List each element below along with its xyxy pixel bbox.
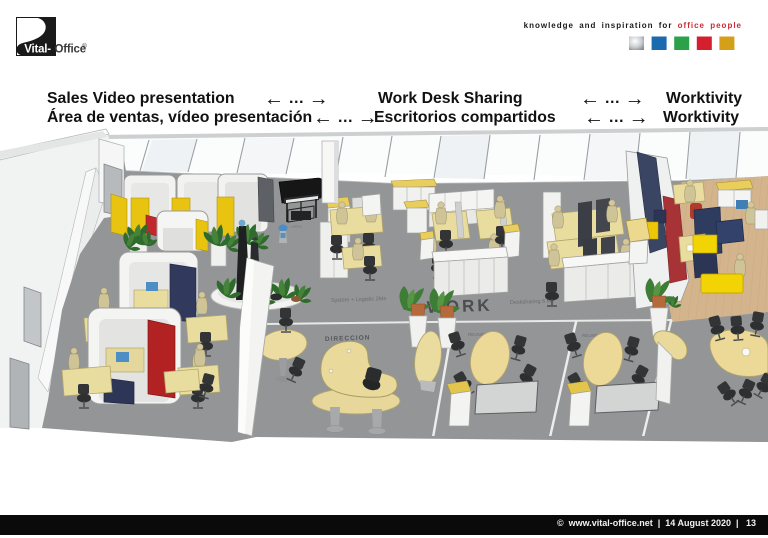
- svg-text:coffee: coffee: [291, 224, 303, 229]
